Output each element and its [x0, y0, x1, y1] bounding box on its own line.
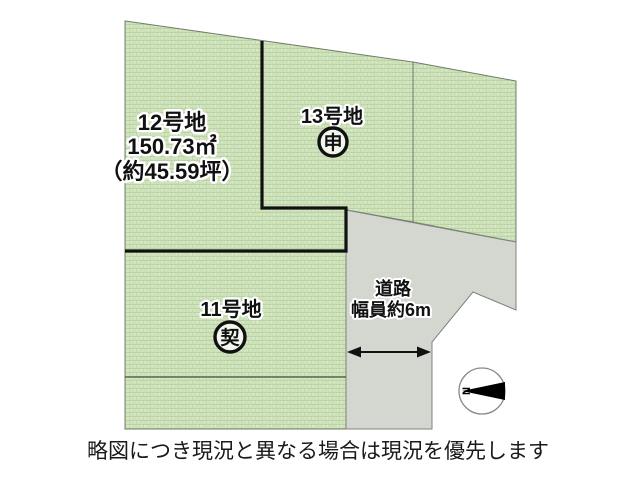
road-name-label: 道路: [375, 278, 412, 299]
lot13-status-char: 申: [323, 131, 342, 154]
lot12-name-label: 12号地: [138, 110, 206, 135]
compass-icon: N: [459, 368, 505, 414]
road-width-label: 幅員約6m: [351, 299, 431, 320]
lot13-status-mark: 申: [319, 128, 347, 156]
lot13-name-label: 13号地: [301, 105, 363, 128]
lot12-area-m2-label: 150.73㎡: [127, 134, 216, 159]
lot11-name-label: 11号地: [200, 298, 261, 321]
parcel-right-region: [413, 62, 516, 242]
lot12-area-tsubo-label: （約45.59坪）: [100, 159, 243, 184]
lot11-status-char: 契: [219, 326, 240, 349]
lot11-status-mark: 契: [215, 322, 245, 352]
disclaimer-caption: 略図につき現況と異なる場合は現況を優先します: [87, 440, 549, 463]
lot-map-canvas: 12号地 150.73㎡ （約45.59坪） 13号地 申 11号地 契 道路 …: [0, 0, 640, 480]
compass-north-letter: N: [461, 387, 473, 395]
lot-map-page: 12号地 150.73㎡ （約45.59坪） 13号地 申 11号地 契 道路 …: [0, 0, 640, 480]
